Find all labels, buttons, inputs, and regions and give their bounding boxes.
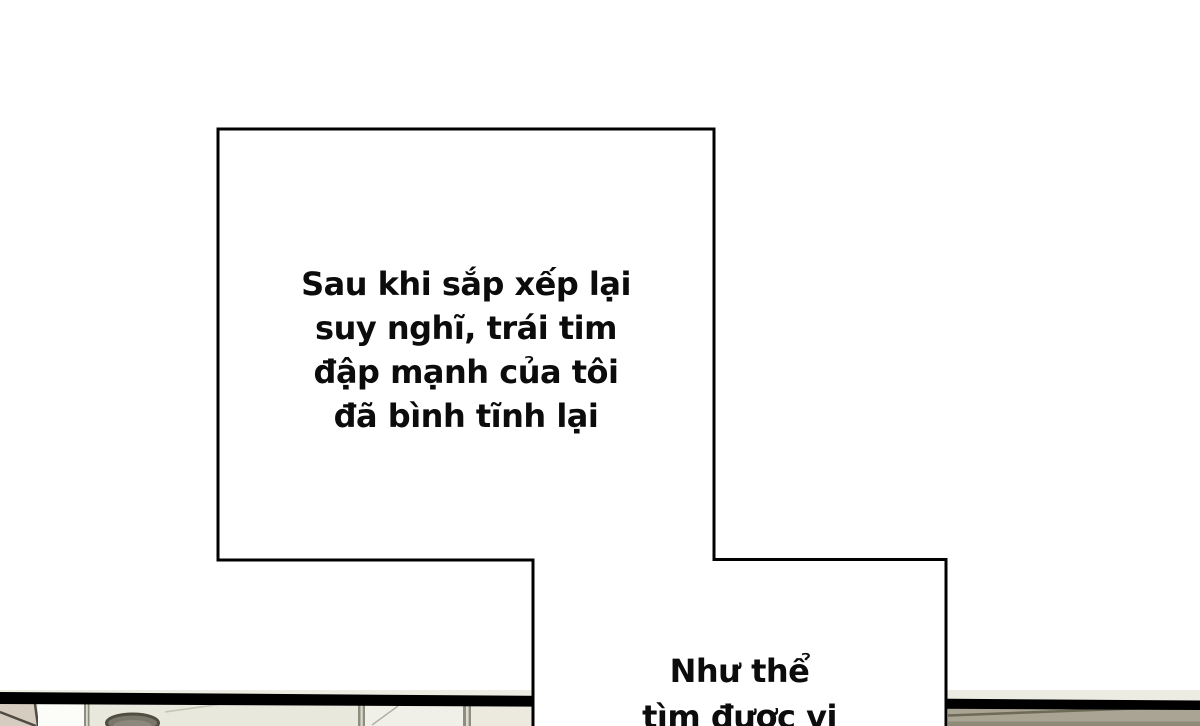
caption-text-1: Sau khi sắp xếp lại suy nghĩ, trái tim đ… — [218, 262, 714, 438]
caption-text-2: Như thể tìm được vị — [533, 648, 946, 726]
caption-1-line-1: Sau khi sắp xếp lại — [218, 262, 714, 306]
caption-2-line-2: tìm được vị — [533, 694, 946, 726]
caption-2-line-1: Như thể — [533, 648, 946, 694]
caption-1-line-3: đập mạnh của tôi — [218, 350, 714, 394]
caption-1-line-2: suy nghĩ, trái tim — [218, 306, 714, 350]
comic-page: Sau khi sắp xếp lại suy nghĩ, trái tim đ… — [0, 0, 1200, 726]
caption-1-line-4: đã bình tĩnh lại — [218, 394, 714, 438]
